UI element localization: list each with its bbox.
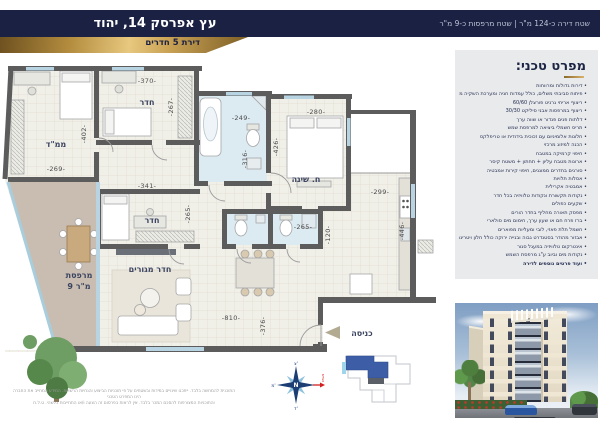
spec-item: חלונות אלומיניום עם זכוכית בידודית או טר… (459, 133, 587, 141)
dim-label: -265- (184, 204, 192, 223)
spec-item: תריס חשמלי ביציאה למרפסת שמש (459, 124, 587, 132)
balcony-label: מרפסת (66, 271, 93, 280)
compass-center-letter: N (293, 382, 298, 389)
compass-north-label: צ' (294, 361, 298, 367)
gold-divider (564, 76, 584, 78)
spec-item: חיפוי קרמיקה במטבח (459, 150, 587, 158)
toilet (235, 220, 247, 236)
dim-label: -376- (259, 316, 267, 335)
spec-item: מפסק תאורה מחליף בחדר הורים (459, 209, 587, 217)
stove (400, 196, 411, 218)
spec-item: ארונות מטבח עליון + תחתון + משטח קיסר (459, 158, 587, 166)
spec-item: הכנה למיזוג מרכזי (459, 141, 587, 149)
page-title: עץ אפרסק 14, יהוד (70, 10, 240, 37)
room-label-living: חדר מגורים (129, 265, 172, 274)
spec-item: דלתות פנים פנדור או שווה ערך (459, 116, 587, 124)
balcony-table (67, 226, 90, 262)
dim-label: -267- (167, 97, 175, 116)
dim-label: -341- (138, 182, 157, 190)
spec-item: פיתוח סביבתי משלים, כולל עמדות חניה ומער… (459, 90, 587, 98)
spec-item-more: ועוד פרטים נוספים לדירה (459, 260, 587, 268)
spec-heading: מפרט טכני: (455, 59, 586, 74)
building-photo (455, 303, 598, 418)
spec-item: נקודות תקשורת ונקודות טלוויזיה בכל חדר (459, 192, 587, 200)
room-label-heder1: חדר (139, 98, 154, 107)
road-label: כביש (321, 374, 326, 382)
spec-list: דירות גדולות ומרווחות פיתוח סביבתי משלים… (459, 82, 587, 268)
room-label-mamad: ממ"ד (46, 140, 67, 149)
flyer-page: עץ אפרסק 14, יהוד שטח דירה כ-124 מ"ר | ש… (0, 0, 600, 424)
compass-south-label: ד' (294, 406, 298, 412)
desk (14, 72, 50, 85)
technical-spec-panel: מפרט טכני: דירות גדולות ומרווחות פיתוח ס… (455, 50, 598, 279)
dim-label: -269- (47, 165, 66, 173)
tv-console (116, 249, 176, 255)
spec-item: חשמל תלת פאזי, לובי ומעליות מפוארים (459, 226, 587, 234)
room-label-master: ח. שינה (292, 175, 321, 184)
armchair (176, 278, 191, 295)
spec-item: ריצוף במרפסות אבני סיליקט 30/30 (459, 107, 587, 115)
dim-label: -316- (241, 149, 249, 168)
sink (247, 158, 261, 169)
compass-rose: N צ' מ' ד' כביש (270, 360, 328, 412)
apartment-areas-label: שטח דירה כ-124 מ"ר | שטח מרפסות כ-9 מ"ר (439, 10, 590, 37)
dim-label: -810- (222, 314, 241, 322)
fridge (350, 274, 372, 294)
dim-label: -280- (307, 108, 326, 116)
dim-label: -120- (324, 225, 332, 244)
gold-ribbon: דירת 5 חדרים (0, 37, 248, 53)
road-direction-arrow (320, 383, 325, 388)
dim-label: -299- (371, 188, 390, 196)
coffee-table (141, 289, 160, 308)
dark-car (572, 404, 597, 415)
spec-item: אמבטיה אקרילית (459, 183, 587, 191)
balcony-size-label: 9 מ"ר (67, 282, 90, 291)
sofa (118, 316, 178, 335)
header-bar: עץ אפרסק 14, יהוד שטח דירה כ-124 מ"ר | ש… (0, 10, 600, 37)
room-label-heder2: חדר (144, 216, 159, 225)
rooms-count-label: דירת 5 חדרים (145, 38, 200, 48)
spec-item: אבזור מהודר בסטנדרט גבוה ובנייה ירוקה כו… (459, 234, 587, 242)
closet (11, 100, 24, 174)
disclaimer-line: התוכנית להמחשה בלבד. ייתכנו שינויים במיד… (10, 389, 238, 401)
toilet (247, 130, 260, 147)
disclaimer-line: והתוכניות המצורפות להסכם המכר בלבד. אין … (10, 401, 238, 407)
key-plan (338, 350, 438, 408)
dim-label: -249- (232, 114, 251, 122)
dim-label: -446- (398, 221, 406, 240)
blue-car (505, 405, 537, 415)
spec-item: סורגים בחדרים ממוגנים, חיפוי קירות אמבטי… (459, 167, 587, 175)
spec-item: דירות גדולות ומרווחות (459, 82, 587, 90)
spec-item: אסלות תלויות (459, 175, 587, 183)
armchair (176, 304, 191, 321)
building-balconies (513, 322, 543, 402)
spec-item: נקודות מים וביוב ע"ג מרפסת השמש (459, 251, 587, 259)
spec-item: שקעים כפולים (459, 200, 587, 208)
dim-label: -370- (138, 77, 157, 85)
entrance-label: כניסה (351, 329, 373, 338)
spec-item: ברז פרח חם או שעון ערך, חימום מים סולארי (459, 217, 587, 225)
spec-item: ריצוף אריחי גרניט פורצלן 60/60 (459, 99, 587, 107)
spec-item: אינטרקום טלוויזיה במעגל סגור (459, 243, 587, 251)
legal-disclaimer: התוכנית להמחשה בלבד. ייתכנו שינויים במיד… (10, 389, 238, 407)
dim-label: -265- (294, 223, 313, 231)
dim-label: -402- (80, 124, 88, 143)
ac-unit (418, 240, 433, 253)
dim-label: -426- (272, 137, 280, 156)
compass-west-label: מ' (271, 383, 275, 389)
balcony-slider (96, 182, 100, 346)
dining-table (236, 258, 274, 288)
sun-terrace (350, 113, 411, 173)
toilet (280, 220, 292, 236)
